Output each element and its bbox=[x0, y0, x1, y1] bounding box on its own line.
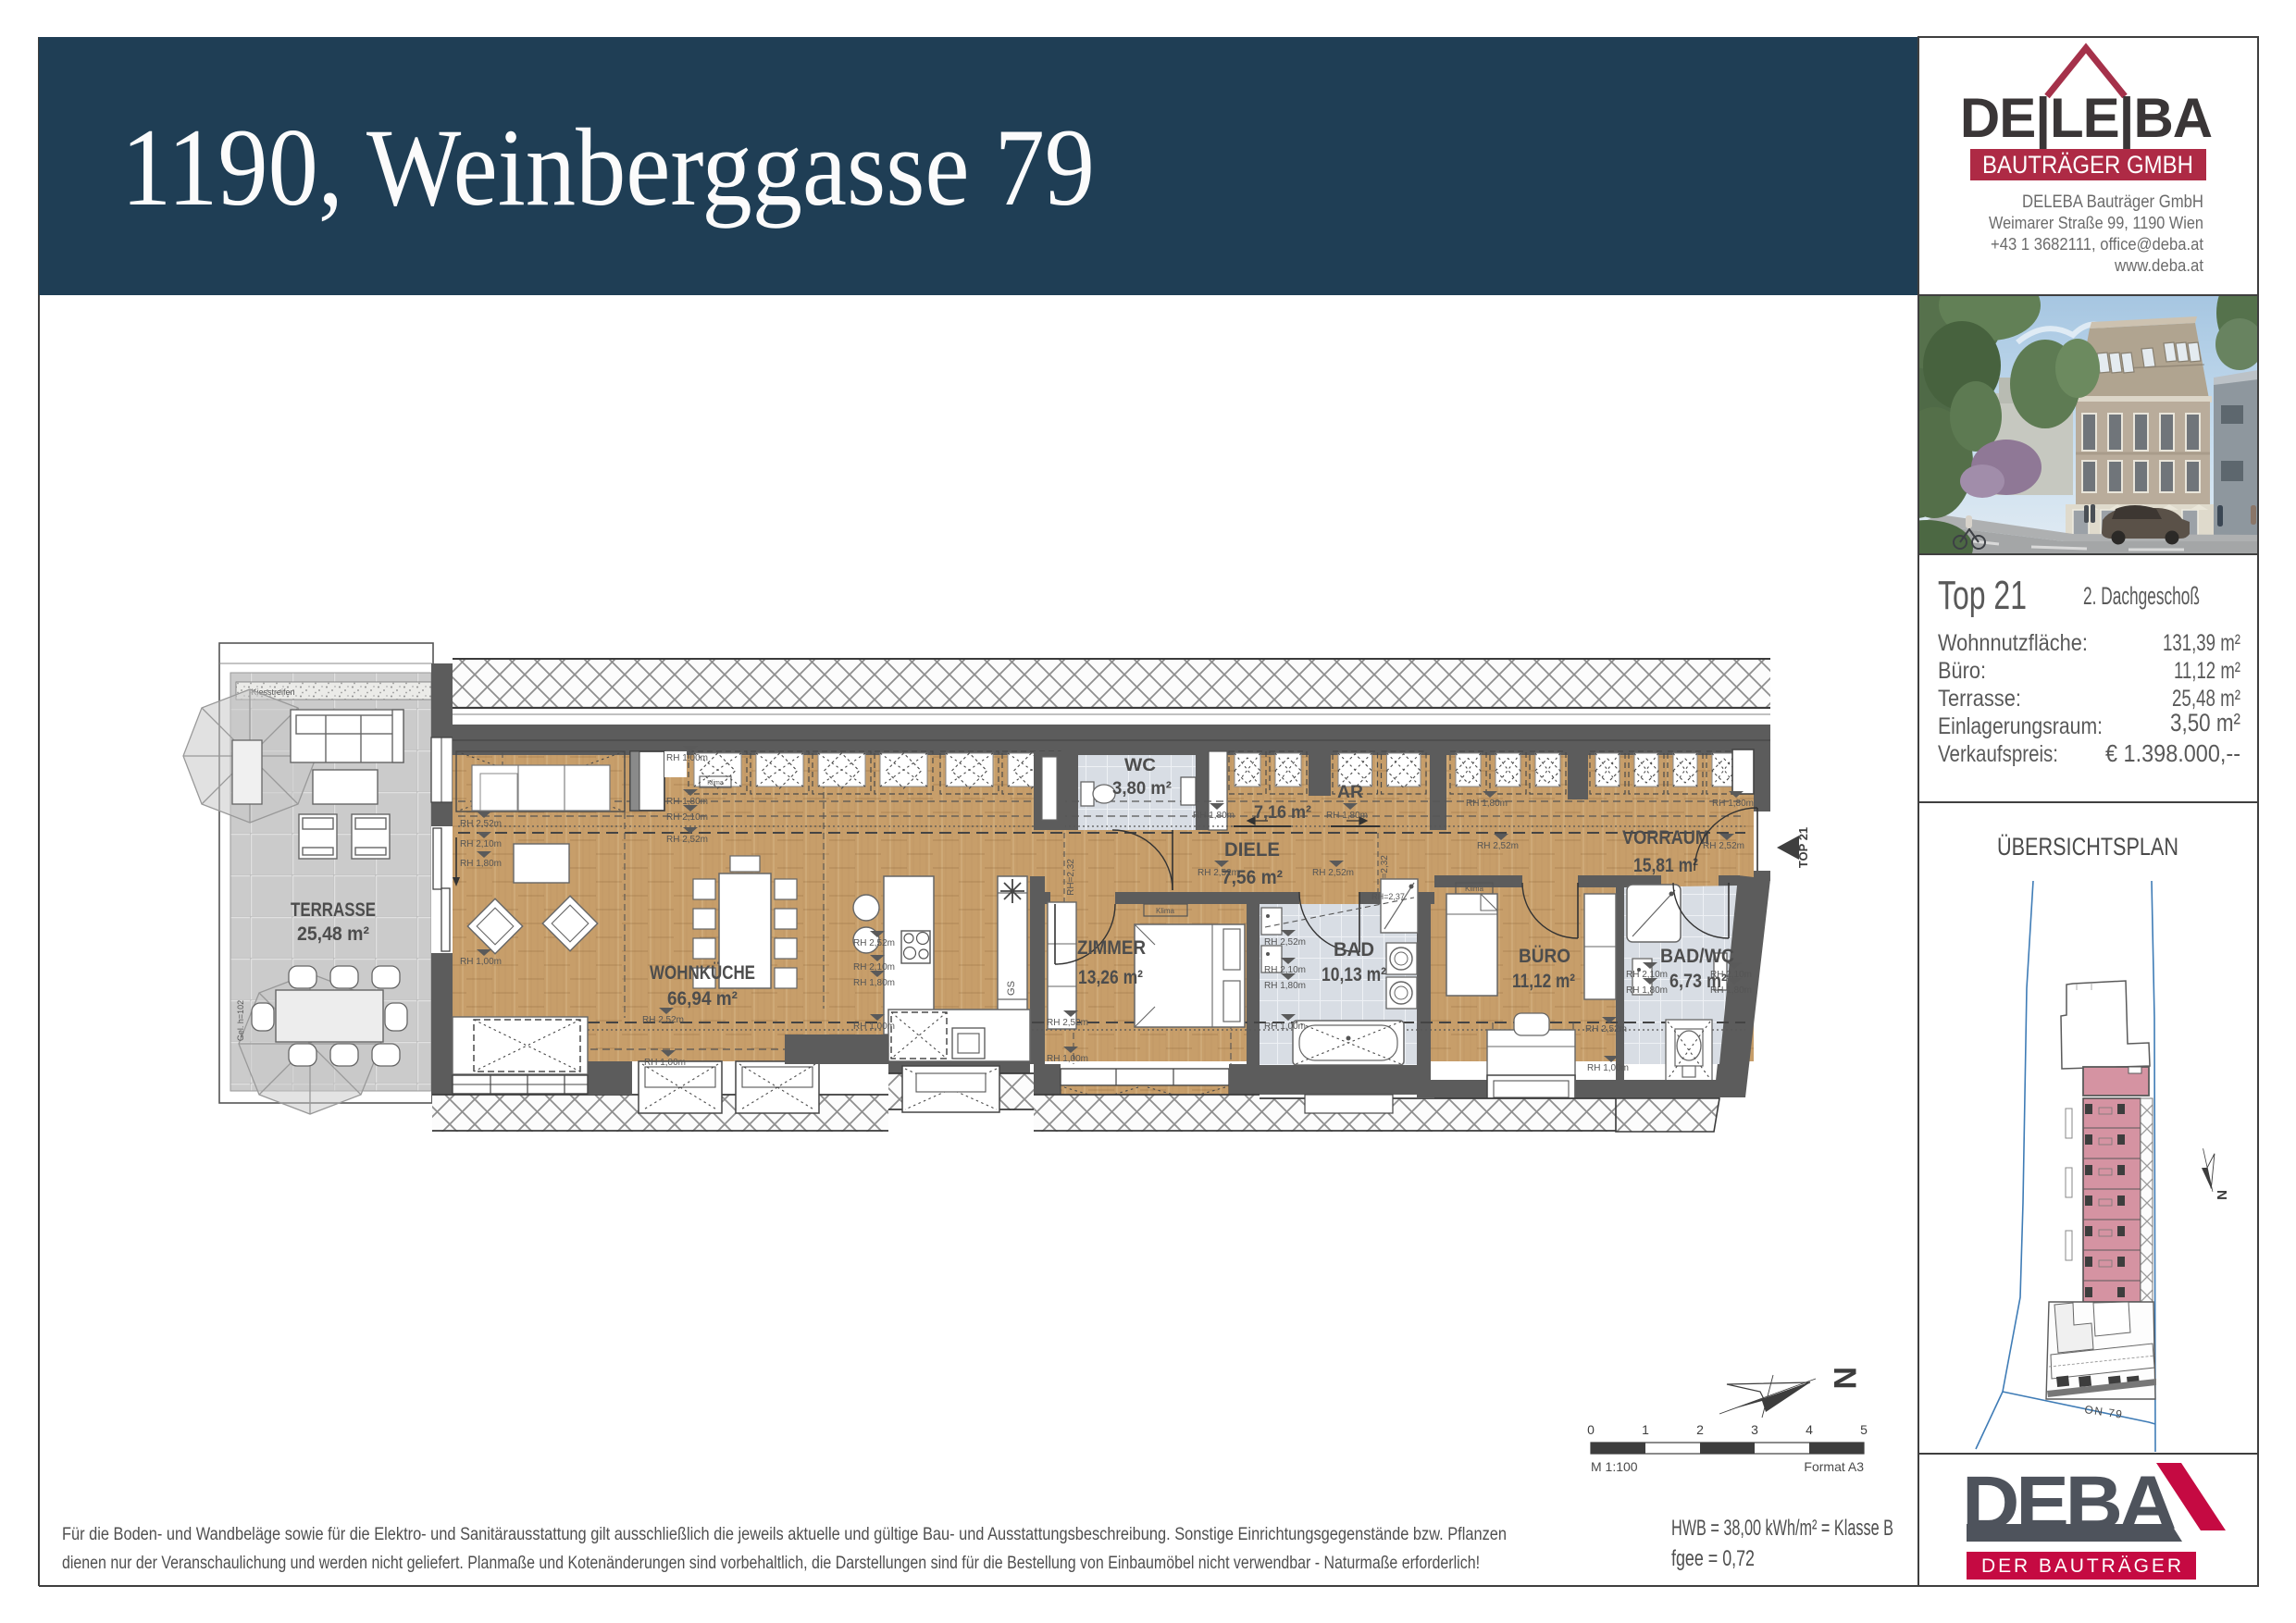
svg-text:+43 1 3682111, office@deba.at: +43 1 3682111, office@deba.at bbox=[1991, 235, 2203, 254]
svg-text:RH=2,37: RH=2,37 bbox=[1371, 892, 1405, 901]
svg-text:11,12 m²: 11,12 m² bbox=[2174, 658, 2240, 684]
svg-text:DE|LE|BA: DE|LE|BA bbox=[1960, 87, 2212, 150]
svg-text:RH 1,80m: RH 1,80m bbox=[1710, 985, 1752, 996]
svg-text:Top 21: Top 21 bbox=[1938, 573, 2027, 618]
svg-text:66,94 m²: 66,94 m² bbox=[667, 988, 738, 1010]
svg-text:BAD/WC: BAD/WC bbox=[1660, 946, 1734, 967]
svg-text:www.deba.at: www.deba.at bbox=[2114, 256, 2203, 275]
svg-text:RH 1,00m: RH 1,00m bbox=[644, 1058, 686, 1068]
svg-text:5: 5 bbox=[1860, 1422, 1868, 1437]
svg-text:RH 2,52m: RH 2,52m bbox=[1703, 841, 1744, 851]
svg-text:RH 2,52m: RH 2,52m bbox=[642, 1015, 684, 1025]
svg-text:RH 1,80m: RH 1,80m bbox=[853, 978, 895, 988]
svg-text:RH 2,52m: RH 2,52m bbox=[460, 819, 502, 829]
svg-text:3: 3 bbox=[1751, 1422, 1758, 1437]
svg-text:RH 2,52m: RH 2,52m bbox=[853, 938, 895, 948]
svg-text:13,26 m²: 13,26 m² bbox=[1078, 967, 1143, 988]
svg-text:WOHNKÜCHE: WOHNKÜCHE bbox=[650, 962, 755, 984]
svg-text:15,81 m²: 15,81 m² bbox=[1633, 855, 1698, 876]
svg-text:RH 2,10m: RH 2,10m bbox=[460, 839, 502, 849]
svg-text:7,16 m²: 7,16 m² bbox=[1254, 803, 1311, 823]
svg-text:Format A3: Format A3 bbox=[1804, 1459, 1864, 1474]
svg-text:BAD: BAD bbox=[1334, 939, 1374, 960]
svg-text:RH 2,52m: RH 2,52m bbox=[1585, 1024, 1627, 1035]
svg-text:RH 1,00m: RH 1,00m bbox=[1264, 1022, 1306, 1032]
svg-text:Verkaufspreis:: Verkaufspreis: bbox=[1938, 741, 2058, 767]
svg-text:3,80 m²: 3,80 m² bbox=[1112, 779, 1172, 799]
svg-text:Wohnnutzfläche:: Wohnnutzfläche: bbox=[1938, 630, 2088, 656]
svg-text:25,48 m²: 25,48 m² bbox=[297, 923, 369, 945]
svg-text:RH 1,00m: RH 1,00m bbox=[1047, 1054, 1088, 1064]
svg-text:Büro:: Büro: bbox=[1938, 658, 1986, 684]
svg-text:RH 2,52m: RH 2,52m bbox=[666, 835, 708, 845]
svg-text:RH 1,00m: RH 1,00m bbox=[1587, 1063, 1629, 1073]
svg-text:HWB = 38,00 kWh/m² = Klasse B: HWB = 38,00 kWh/m² = Klasse B bbox=[1671, 1516, 1893, 1541]
svg-text:1: 1 bbox=[1642, 1422, 1649, 1437]
svg-text:Klima: Klima bbox=[1465, 885, 1484, 893]
svg-text:131,39 m²: 131,39 m² bbox=[2163, 630, 2240, 656]
svg-text:fgee = 0,72: fgee = 0,72 bbox=[1671, 1546, 1755, 1571]
svg-text:dienen nur der Veranschaulichu: dienen nur der Veranschaulichung und wer… bbox=[62, 1554, 1480, 1573]
svg-text:11,12 m²: 11,12 m² bbox=[1512, 971, 1575, 992]
svg-text:RH=2,32: RH=2,32 bbox=[1066, 859, 1076, 896]
svg-text:Gel. h=102: Gel. h=102 bbox=[236, 1000, 245, 1041]
svg-text:RH 1,80m: RH 1,80m bbox=[1264, 981, 1306, 991]
svg-text:2. Dachgeschoß: 2. Dachgeschoß bbox=[2083, 582, 2200, 610]
svg-text:RH 1,80m: RH 1,80m bbox=[1466, 799, 1508, 809]
svg-text:DELEBA Bauträger GmbH: DELEBA Bauträger GmbH bbox=[2022, 192, 2203, 212]
svg-text:RH 1,00m: RH 1,00m bbox=[460, 957, 502, 967]
svg-text:RH 2,52m: RH 2,52m bbox=[1477, 841, 1519, 851]
svg-text:ZIMMER: ZIMMER bbox=[1077, 937, 1146, 959]
svg-text:WC: WC bbox=[1124, 756, 1156, 775]
svg-text:RH 1,80m: RH 1,80m bbox=[460, 859, 502, 869]
svg-text:Klima: Klima bbox=[707, 780, 724, 787]
svg-text:4: 4 bbox=[1806, 1422, 1813, 1437]
svg-text:€ 1.398.000,--: € 1.398.000,-- bbox=[2105, 739, 2240, 767]
svg-text:3,50 m²: 3,50 m² bbox=[2170, 709, 2240, 737]
svg-text:M 1:100: M 1:100 bbox=[1591, 1459, 1638, 1474]
svg-text:N: N bbox=[1827, 1367, 1862, 1390]
svg-text:TERRASSE: TERRASSE bbox=[291, 899, 376, 921]
svg-text:VORRAUM: VORRAUM bbox=[1622, 827, 1709, 849]
svg-text:Für die Boden- und Wandbeläge: Für die Boden- und Wandbeläge sowie für … bbox=[62, 1525, 1507, 1544]
svg-text:RH 1,80m: RH 1,80m bbox=[1626, 985, 1668, 996]
svg-text:RH 2,10m: RH 2,10m bbox=[666, 812, 708, 823]
svg-text:Einlagerungsraum:: Einlagerungsraum: bbox=[1938, 713, 2103, 739]
svg-text:BÜRO: BÜRO bbox=[1519, 946, 1570, 967]
svg-text:RH 1,00m: RH 1,00m bbox=[853, 1022, 895, 1032]
svg-text:25,48 m²: 25,48 m² bbox=[2172, 686, 2240, 712]
svg-text:AR: AR bbox=[1337, 783, 1363, 802]
svg-text:0: 0 bbox=[1587, 1422, 1595, 1437]
svg-text:RH 2,52m: RH 2,52m bbox=[1264, 937, 1306, 948]
svg-text:1190, Weinberggasse 79: 1190, Weinberggasse 79 bbox=[121, 105, 1095, 229]
svg-text:Terrasse:: Terrasse: bbox=[1938, 686, 2021, 712]
svg-text:RH 2,52m: RH 2,52m bbox=[1312, 868, 1354, 878]
svg-text:2: 2 bbox=[1696, 1422, 1704, 1437]
svg-text:Weimarer Straße 99, 1190 Wien: Weimarer Straße 99, 1190 Wien bbox=[1989, 214, 2203, 232]
svg-text:10,13 m²: 10,13 m² bbox=[1322, 964, 1386, 985]
svg-text:RH 1,80m: RH 1,80m bbox=[1193, 811, 1235, 821]
svg-text:GS: GS bbox=[1006, 981, 1017, 996]
svg-text:ÜBERSICHTSPLAN: ÜBERSICHTSPLAN bbox=[1997, 833, 2178, 861]
svg-text:RH 1,80m: RH 1,80m bbox=[1712, 799, 1754, 809]
svg-text:RH 2,52m: RH 2,52m bbox=[1198, 868, 1239, 878]
svg-text:BAUTRÄGER GMBH: BAUTRÄGER GMBH bbox=[1982, 151, 2193, 179]
svg-text:RH 1,00m: RH 1,00m bbox=[666, 753, 708, 763]
svg-text:RH 1,80m: RH 1,80m bbox=[1326, 811, 1368, 821]
svg-text:RH 2,52m: RH 2,52m bbox=[1047, 1018, 1088, 1028]
svg-text:TOP 21: TOP 21 bbox=[1796, 827, 1810, 868]
svg-text:DIELE: DIELE bbox=[1224, 839, 1280, 861]
svg-text:Klima: Klima bbox=[1156, 907, 1175, 915]
svg-text:N: N bbox=[2214, 1190, 2229, 1200]
